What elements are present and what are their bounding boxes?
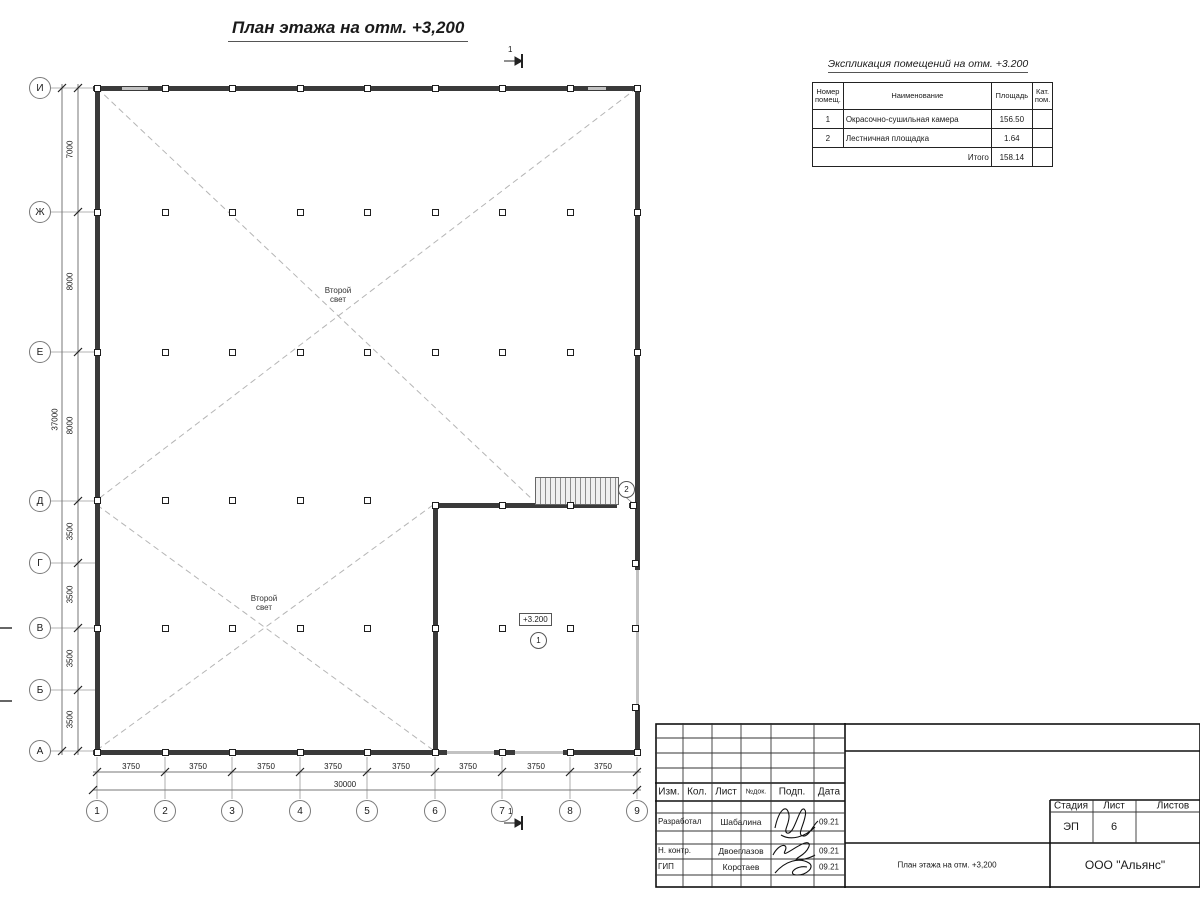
column-marker xyxy=(297,497,304,504)
tb-company: ООО "Альянс" xyxy=(1085,858,1165,872)
cell-name: Окрасочно-сушильная камера xyxy=(843,110,991,129)
column-marker xyxy=(634,749,641,756)
column-marker xyxy=(632,704,639,711)
column-marker xyxy=(94,209,101,216)
plan-title: План этажа на отм. +3,200 xyxy=(228,18,468,42)
column-marker xyxy=(630,502,637,509)
axis-circle-bottom: 9 xyxy=(626,800,648,822)
column-marker xyxy=(364,349,371,356)
column-marker xyxy=(364,497,371,504)
column-marker xyxy=(162,497,169,504)
column-marker xyxy=(632,560,639,567)
column-marker xyxy=(567,209,574,216)
wall-left xyxy=(95,86,100,755)
tb-header-podp: Подп. xyxy=(779,787,806,798)
axis-circle-bottom: 4 xyxy=(289,800,311,822)
column-marker xyxy=(229,349,236,356)
void-label-upper: Второй свет xyxy=(316,286,360,304)
cell-area: 156.50 xyxy=(991,110,1032,129)
axis-circle-left: Ж xyxy=(29,201,51,223)
column-marker xyxy=(94,85,101,92)
axis-circle-left: Г xyxy=(29,552,51,574)
column-marker xyxy=(432,349,439,356)
column-marker xyxy=(364,209,371,216)
column-marker xyxy=(499,85,506,92)
dim-total-bottom: 30000 xyxy=(325,780,365,789)
column-marker xyxy=(229,85,236,92)
column-marker xyxy=(297,85,304,92)
column-marker xyxy=(432,625,439,632)
tb-name: Двоеглазов xyxy=(718,846,763,856)
column-marker xyxy=(297,209,304,216)
axis-circle-bottom: 8 xyxy=(559,800,581,822)
cell-cat xyxy=(1032,148,1052,167)
column-marker xyxy=(162,749,169,756)
tb-doc-title: План этажа на отм. +3,200 xyxy=(897,861,996,870)
cell-cat xyxy=(1032,129,1052,148)
dim-total-left: 37000 xyxy=(51,400,60,440)
dim-label: 3500 xyxy=(66,575,75,615)
dim-label: 8000 xyxy=(66,262,75,302)
column-marker xyxy=(634,349,641,356)
tb-sheets-label: Листов xyxy=(1157,801,1190,812)
explication-title: Экспликация помещений на отм. +3.200 xyxy=(812,58,1044,70)
column-marker xyxy=(94,625,101,632)
tb-name: Коротаев xyxy=(723,862,760,872)
cell-num: 1 xyxy=(813,110,844,129)
explication-header-num: Номер помещ. xyxy=(813,83,844,110)
explication-table: Номер помещ. Наименование Площадь Кат. п… xyxy=(812,82,1053,167)
wall-bottom-main xyxy=(93,750,447,755)
wall-bottom-right xyxy=(563,750,641,755)
dim-label: 3750 xyxy=(583,762,623,771)
tb-header-list: Лист xyxy=(715,787,737,798)
dim-label: 3500 xyxy=(66,700,75,740)
column-marker xyxy=(499,625,506,632)
column-marker xyxy=(364,625,371,632)
wall-opening xyxy=(515,751,563,754)
cell-total-area: 158.14 xyxy=(991,148,1032,167)
column-marker xyxy=(94,749,101,756)
tb-role: ГИП xyxy=(658,862,674,871)
axis-circle-bottom: 6 xyxy=(424,800,446,822)
column-marker xyxy=(567,625,574,632)
dim-label: 3750 xyxy=(246,762,286,771)
tb-date: 09.21 xyxy=(819,847,839,856)
column-marker xyxy=(162,349,169,356)
column-marker xyxy=(499,749,506,756)
tb-sheet-value: 6 xyxy=(1111,821,1117,833)
column-marker xyxy=(297,749,304,756)
cell-total-label: Итого xyxy=(813,148,992,167)
dim-label: 3500 xyxy=(66,512,75,552)
column-marker xyxy=(432,749,439,756)
dim-label: 7000 xyxy=(66,130,75,170)
column-marker xyxy=(364,749,371,756)
dim-label: 3750 xyxy=(111,762,151,771)
tb-role: Разработал xyxy=(658,817,702,826)
cell-area: 1.64 xyxy=(991,129,1032,148)
tb-header-ndok: №док. xyxy=(746,789,767,796)
tb-header-izm: Изм. xyxy=(658,787,679,798)
tb-role: Н. контр. xyxy=(658,846,691,855)
explication-header-area: Площадь xyxy=(991,83,1032,110)
column-marker xyxy=(162,625,169,632)
dim-label: 3750 xyxy=(178,762,218,771)
column-marker xyxy=(364,85,371,92)
column-marker xyxy=(634,209,641,216)
column-marker xyxy=(432,502,439,509)
dim-label: 3500 xyxy=(66,639,75,679)
column-marker xyxy=(229,209,236,216)
column-marker xyxy=(297,625,304,632)
column-marker xyxy=(499,349,506,356)
tb-date: 09.21 xyxy=(819,818,839,827)
column-marker xyxy=(229,749,236,756)
column-marker xyxy=(499,502,506,509)
column-marker xyxy=(432,209,439,216)
axis-circle-bottom: 1 xyxy=(86,800,108,822)
wall-right-upper xyxy=(635,86,640,570)
table-row-total: Итого 158.14 xyxy=(813,148,1053,167)
dim-label: 3750 xyxy=(381,762,421,771)
drawing-sheet: План этажа на отм. +3,200 1 1 И Ж Е Д Г … xyxy=(0,0,1200,900)
stairs xyxy=(535,477,619,505)
axis-circle-left: А xyxy=(29,740,51,762)
wall-opening xyxy=(588,87,606,90)
column-marker xyxy=(229,497,236,504)
signature xyxy=(773,809,818,875)
section-mark-bottom: 1 xyxy=(508,807,512,816)
table-row: 1 Окрасочно-сушильная камера 156.50 xyxy=(813,110,1053,129)
axis-circle-bottom: 2 xyxy=(154,800,176,822)
void-label-lower: Второй свет xyxy=(242,594,286,612)
column-marker xyxy=(297,349,304,356)
axis-circle-left: Б xyxy=(29,679,51,701)
column-marker xyxy=(567,85,574,92)
axis-circle-left: В xyxy=(29,617,51,639)
wall-right-lower xyxy=(635,705,640,755)
section-mark-top: 1 xyxy=(508,45,512,54)
tb-date: 09.21 xyxy=(819,863,839,872)
column-marker xyxy=(162,209,169,216)
column-marker xyxy=(94,497,101,504)
wall-opening xyxy=(636,570,639,705)
tb-header-kol: Кол. xyxy=(687,787,707,798)
dim-label: 8000 xyxy=(66,406,75,446)
cell-num: 2 xyxy=(813,129,844,148)
dim-label: 3750 xyxy=(313,762,353,771)
axis-circle-left: Д xyxy=(29,490,51,512)
column-marker xyxy=(567,749,574,756)
axis-circle-left: Е xyxy=(29,341,51,363)
tb-stage-label: Стадия xyxy=(1054,801,1088,812)
room-number-1: 1 xyxy=(530,632,547,649)
column-marker xyxy=(162,85,169,92)
tb-header-data: Дата xyxy=(818,787,840,798)
tb-stage-value: ЭП xyxy=(1063,821,1079,833)
tb-name: Шабалина xyxy=(720,817,761,827)
tb-sheet-label: Лист xyxy=(1103,801,1125,812)
title-block: Изм. Кол. Лист №док. Подп. Дата Разработ… xyxy=(655,723,1200,888)
cell-cat xyxy=(1032,110,1052,129)
axis-circle-bottom: 5 xyxy=(356,800,378,822)
column-marker xyxy=(567,502,574,509)
column-marker xyxy=(229,625,236,632)
dim-label: 3750 xyxy=(448,762,488,771)
column-marker xyxy=(432,85,439,92)
room-number-2: 2 xyxy=(618,481,635,498)
cell-name: Лестничная площадка xyxy=(843,129,991,148)
wall-opening xyxy=(122,87,148,90)
column-marker xyxy=(567,349,574,356)
column-marker xyxy=(634,85,641,92)
axis-circle-bottom: 3 xyxy=(221,800,243,822)
axis-circle-left: И xyxy=(29,77,51,99)
elevation-marker: +3.200 xyxy=(519,613,552,626)
dim-label: 3750 xyxy=(516,762,556,771)
table-row: 2 Лестничная площадка 1.64 xyxy=(813,129,1053,148)
column-marker xyxy=(632,625,639,632)
explication-header-name: Наименование xyxy=(843,83,991,110)
column-marker xyxy=(94,349,101,356)
wall-opening xyxy=(447,751,495,754)
explication-header-cat: Кат. пом. xyxy=(1032,83,1052,110)
column-marker xyxy=(499,209,506,216)
